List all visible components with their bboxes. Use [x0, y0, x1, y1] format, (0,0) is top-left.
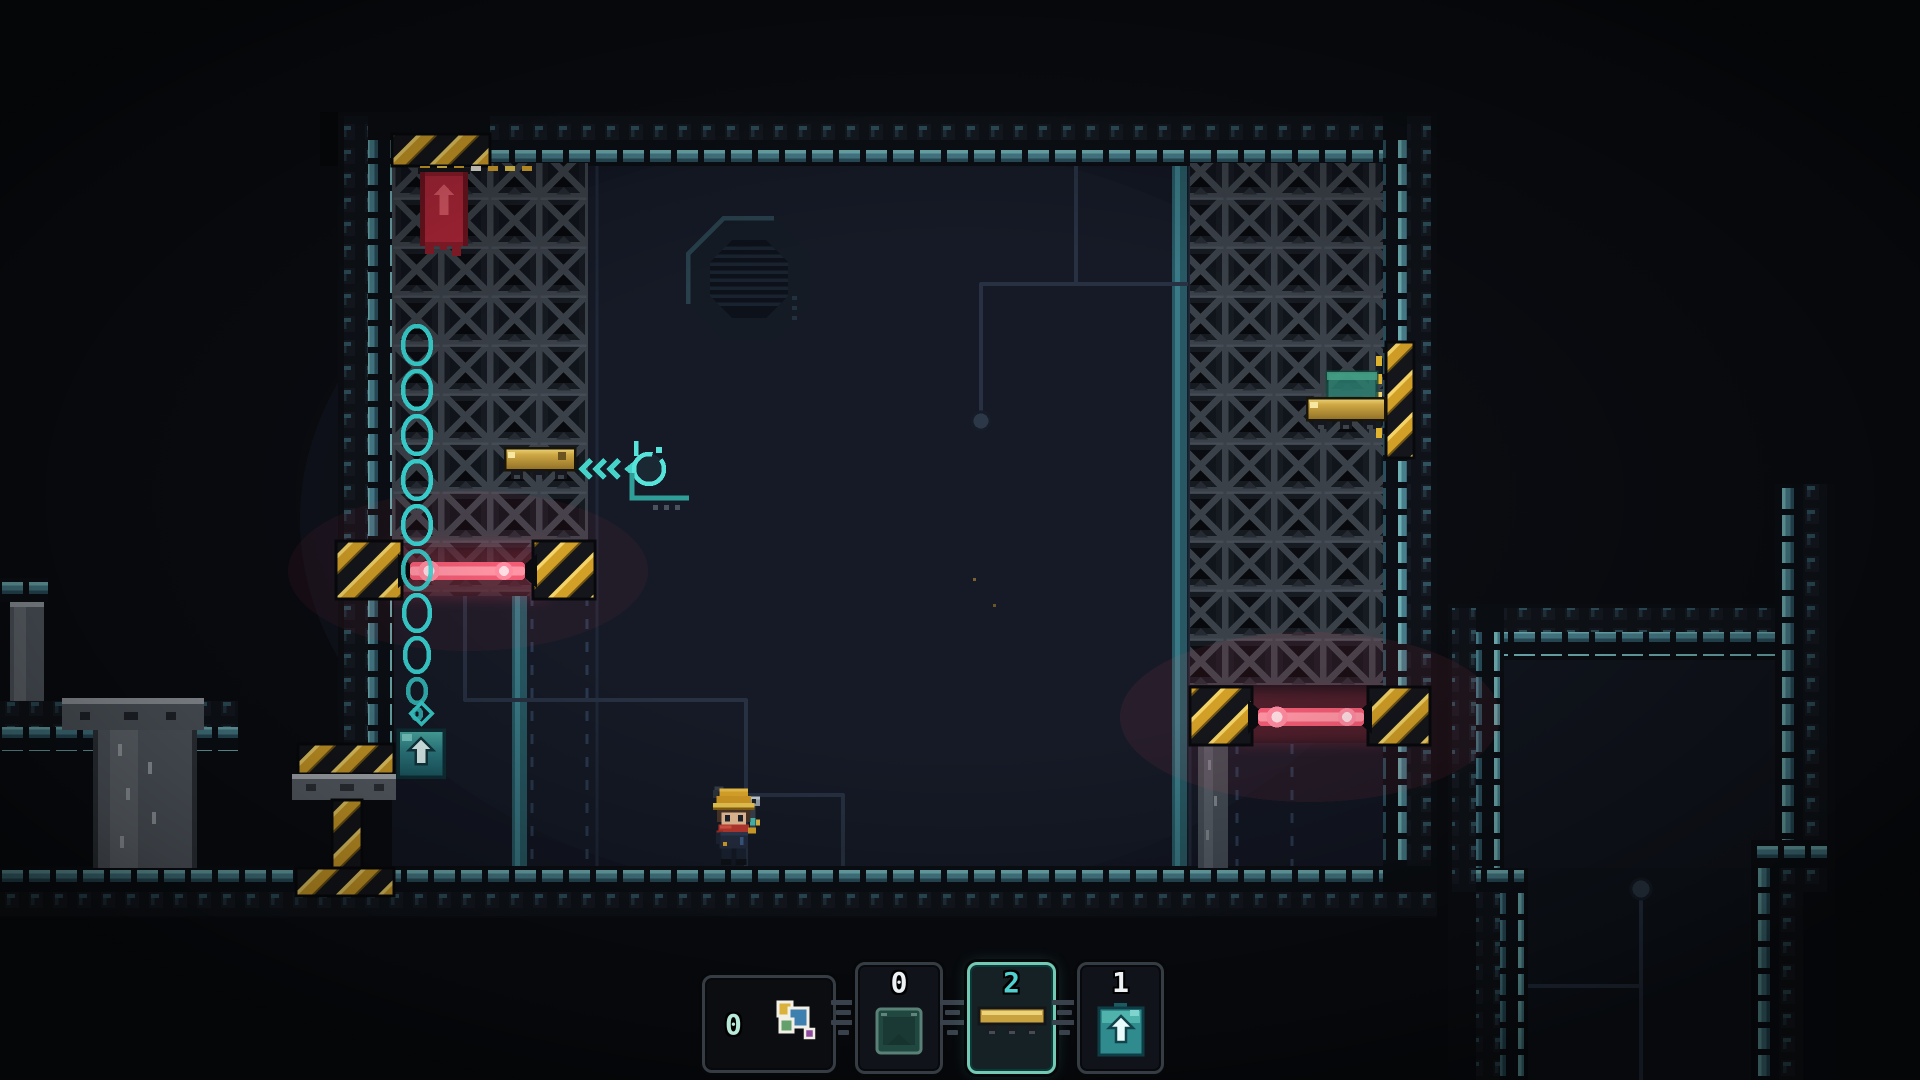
hotbar-connector	[940, 1000, 965, 1035]
slot-count: 0	[858, 968, 940, 998]
hotbar-slot-palette[interactable]: 0	[702, 975, 836, 1073]
hotbar-connector	[831, 1000, 856, 1035]
color-blocks-icon	[775, 1000, 819, 1048]
hotbar-slot-green-crate[interactable]: 0	[855, 962, 943, 1074]
slot-count: 0	[725, 1010, 742, 1040]
hotbar: 0 0 2	[0, 0, 1920, 1080]
hotbar-slot-gold-platform[interactable]: 2	[967, 962, 1056, 1074]
game-viewport: 0 0 2	[0, 0, 1920, 1080]
jump-pad-icon	[1094, 1001, 1148, 1063]
slot-count: 1	[1080, 968, 1161, 998]
slot-count: 2	[970, 968, 1053, 998]
gold-platform-icon	[976, 1004, 1048, 1044]
hotbar-slot-jump-pad[interactable]: 1	[1077, 962, 1164, 1074]
hotbar-connector	[1052, 1000, 1077, 1035]
green-crate-icon	[874, 1006, 924, 1060]
